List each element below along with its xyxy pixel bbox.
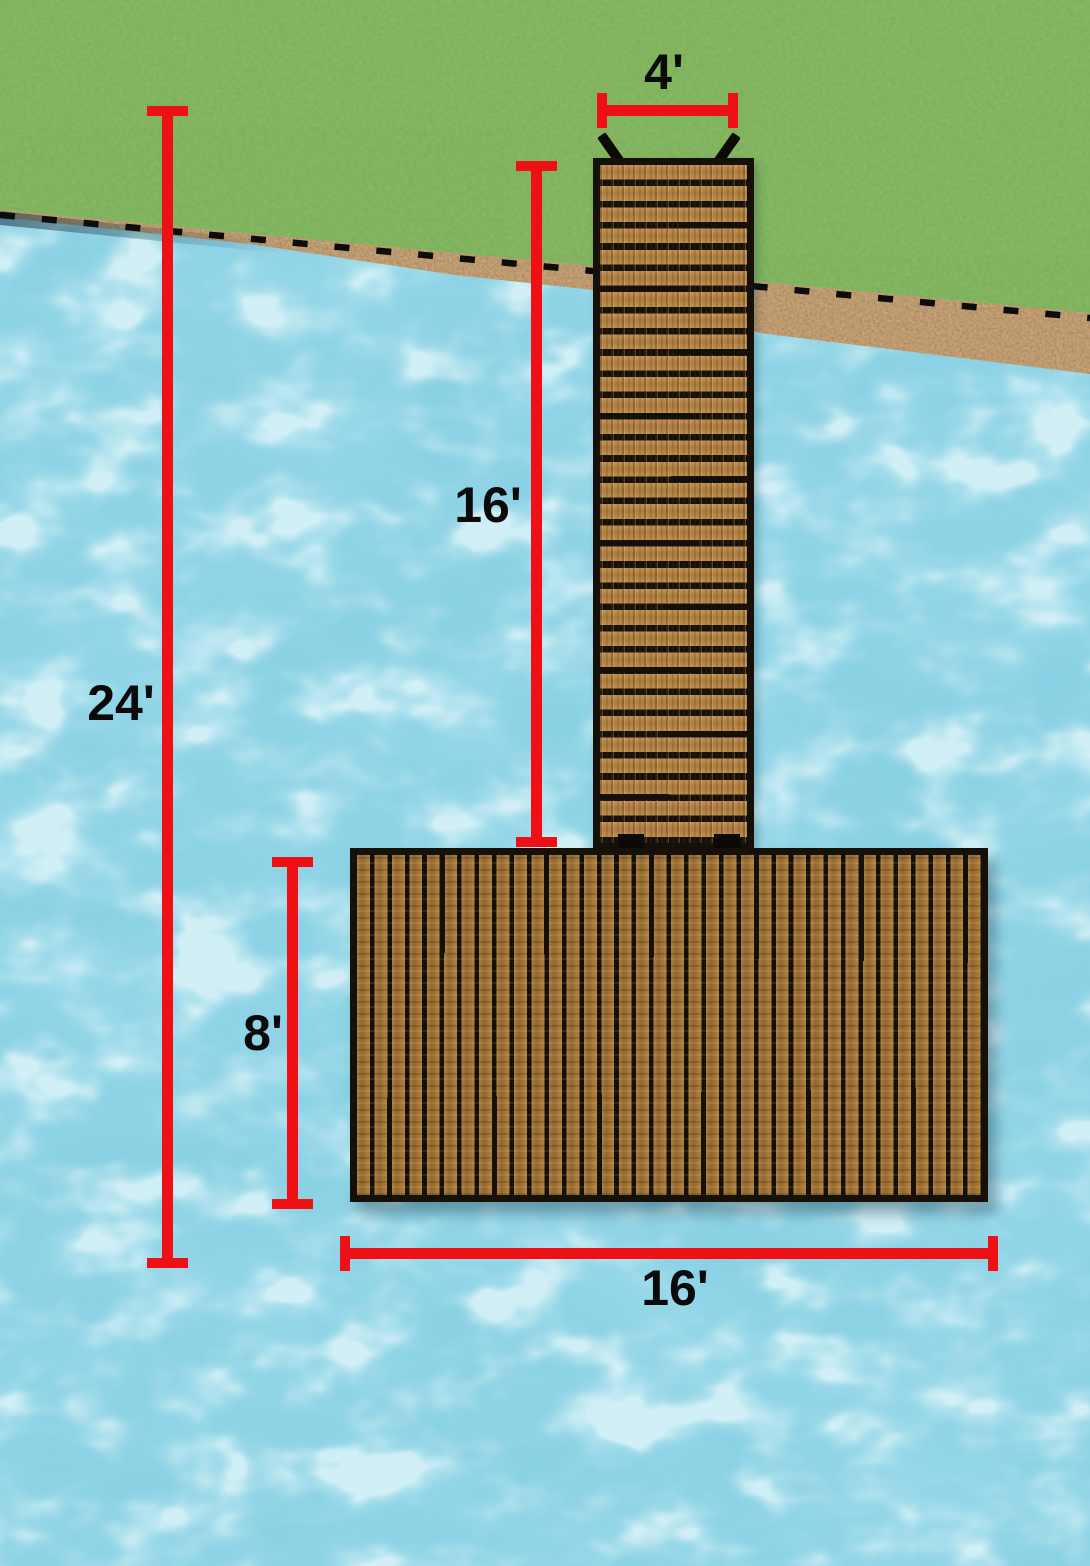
plank-gap-line xyxy=(600,540,697,546)
plank-gap-line xyxy=(859,855,864,961)
plank-gap-line xyxy=(649,855,654,957)
plank-gap-line xyxy=(544,855,549,955)
plank-gap-line xyxy=(671,476,747,482)
plank-gap-line xyxy=(600,667,701,673)
plank-gap-line xyxy=(754,855,759,959)
plank-gap-line xyxy=(597,1094,602,1195)
plank-gap-line xyxy=(492,1096,497,1195)
plank-gap-line xyxy=(701,1092,706,1195)
plank-gap-line xyxy=(387,1098,392,1195)
plank-gap-line xyxy=(675,349,747,355)
platform-dock xyxy=(350,848,988,1202)
plank-gap-line xyxy=(600,413,693,419)
walkway-dock xyxy=(593,158,754,850)
plank-gap-line xyxy=(600,794,669,800)
plank-gap-line xyxy=(679,222,747,228)
plank-gap-line xyxy=(600,286,688,292)
dock-diagram-canvas: 4' 16' 24' 8' 16' xyxy=(0,0,1090,1566)
plank-gap-line xyxy=(806,1090,811,1195)
plank-gap-line xyxy=(662,731,747,737)
plank-gap-line xyxy=(911,1088,916,1195)
plank-gap-line xyxy=(963,855,968,963)
shore-water-background xyxy=(0,0,1090,1566)
plank-gap-line xyxy=(440,855,445,953)
plank-gap-line xyxy=(666,604,747,610)
